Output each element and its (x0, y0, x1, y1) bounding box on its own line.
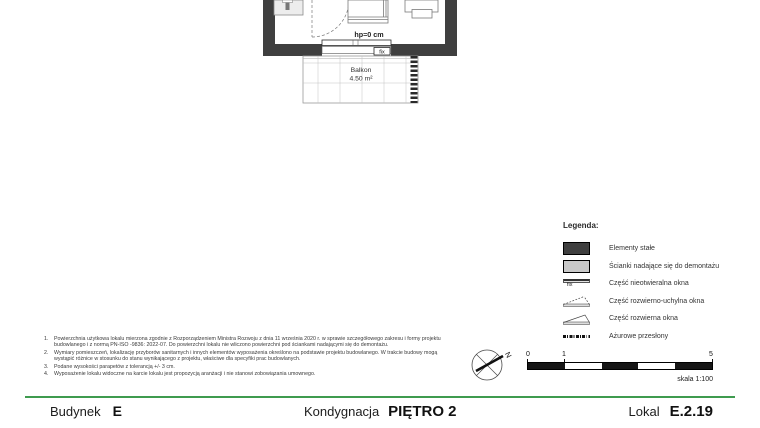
legend-item-label: Część nieotwieralna okna (609, 280, 689, 287)
tilt-turn-window-icon (563, 295, 590, 307)
note-item: 1. Powierzchnia użytkowa lokalu mierzona… (44, 336, 458, 349)
building-label: Budynek (50, 404, 101, 419)
scale-tick-5: 5 (709, 351, 713, 358)
scale-caption: skala 1:100 (677, 376, 713, 383)
footer-unit: Lokal E.2.19 (629, 403, 713, 420)
legend-item-label: Ścianki nadające się do demontażu (609, 263, 719, 270)
sill-height-label: hp=0 cm (354, 30, 383, 39)
note-number: 4. (44, 371, 54, 377)
legend-item-tilt-turn-window: Część rozwierno-uchylna okna (563, 293, 760, 311)
bed-furniture (348, 0, 388, 23)
north-label: N (503, 350, 513, 359)
legend-item-fixed-elements: Elementy stałe (563, 240, 760, 258)
note-number: 3. (44, 364, 54, 370)
balcony-area-label: 4.50 m² (349, 76, 373, 83)
floor-plan-fragment: hp=0 cm fix Balkon 4.50 m² (261, 0, 457, 106)
building-value: E (113, 403, 122, 419)
balcony: Balkon 4.50 m² (303, 56, 418, 103)
unit-label: Lokal (629, 404, 660, 419)
demountable-wall-swatch-icon (563, 260, 590, 273)
legend-item-label: Ażurowe przesłony (609, 333, 668, 340)
legend-item-label: Część rozwierna okna (609, 315, 678, 322)
note-item: 4. Wyposażenie lokalu widoczne na karcie… (44, 371, 458, 377)
fixed-window-icon: fix (563, 279, 590, 289)
floor-value: PIĘTRO 2 (388, 403, 456, 420)
note-text: Powierzchnia użytkowa lokalu mierzona zg… (54, 336, 458, 349)
sanitary-fixture (274, 0, 303, 15)
footer-floor: Kondygnacja PIĘTRO 2 (304, 403, 457, 420)
fixed-window-fix-text: fix (567, 283, 590, 289)
balcony-name-label: Balkon (351, 67, 372, 74)
unit-value: E.2.19 (670, 403, 713, 420)
legend-item-label: Część rozwierno-uchylna okna (609, 298, 704, 305)
note-number: 1. (44, 336, 54, 349)
legend-item-side-hung-window: Część rozwierna okna (563, 310, 760, 328)
north-arrow-compass: N (470, 342, 516, 388)
balcony-window: fix (322, 40, 391, 56)
legend-title: Legenda: (563, 221, 760, 230)
window-fix-label: fix (379, 50, 385, 56)
legend-item-openwork-screens: Ażurowe przesłony (563, 328, 760, 346)
note-text: Podane wysokości parapetów z tolerancją … (54, 364, 458, 370)
side-hung-window-icon (563, 313, 590, 325)
footer-building: Budynek E (50, 403, 122, 419)
note-number: 2. (44, 350, 54, 363)
scale-bar: 0 1 5 skala 1:100 (527, 351, 713, 387)
note-item: 3. Podane wysokości parapetów z toleranc… (44, 364, 458, 370)
scale-bar-segments (527, 362, 713, 370)
legend-item-demountable-walls: Ścianki nadające się do demontażu (563, 258, 760, 276)
legend-item-label: Elementy stałe (609, 245, 655, 252)
legend-item-fixed-window: fix Część nieotwieralna okna (563, 275, 760, 293)
note-text: Wyposażenie lokalu widoczne na karcie lo… (54, 371, 458, 377)
scale-tick-1: 1 (562, 351, 566, 358)
openwork-screen-icon (563, 335, 590, 338)
note-item: 2. Wymiary pomieszczeń, lokalizację przy… (44, 350, 458, 363)
legend: Legenda: Elementy stałe Ścianki nadające… (563, 221, 760, 345)
apartment-card-sheet: hp=0 cm fix Balkon 4.50 m² Legen (0, 0, 760, 428)
floor-label: Kondygnacja (304, 404, 379, 419)
scale-tick-0: 0 (526, 351, 530, 358)
note-text: Wymiary pomieszczeń, lokalizację przybor… (54, 350, 458, 363)
footer-accent-line (25, 396, 735, 398)
fixed-elements-swatch-icon (563, 242, 590, 255)
notes-list: 1. Powierzchnia użytkowa lokalu mierzona… (44, 336, 458, 378)
